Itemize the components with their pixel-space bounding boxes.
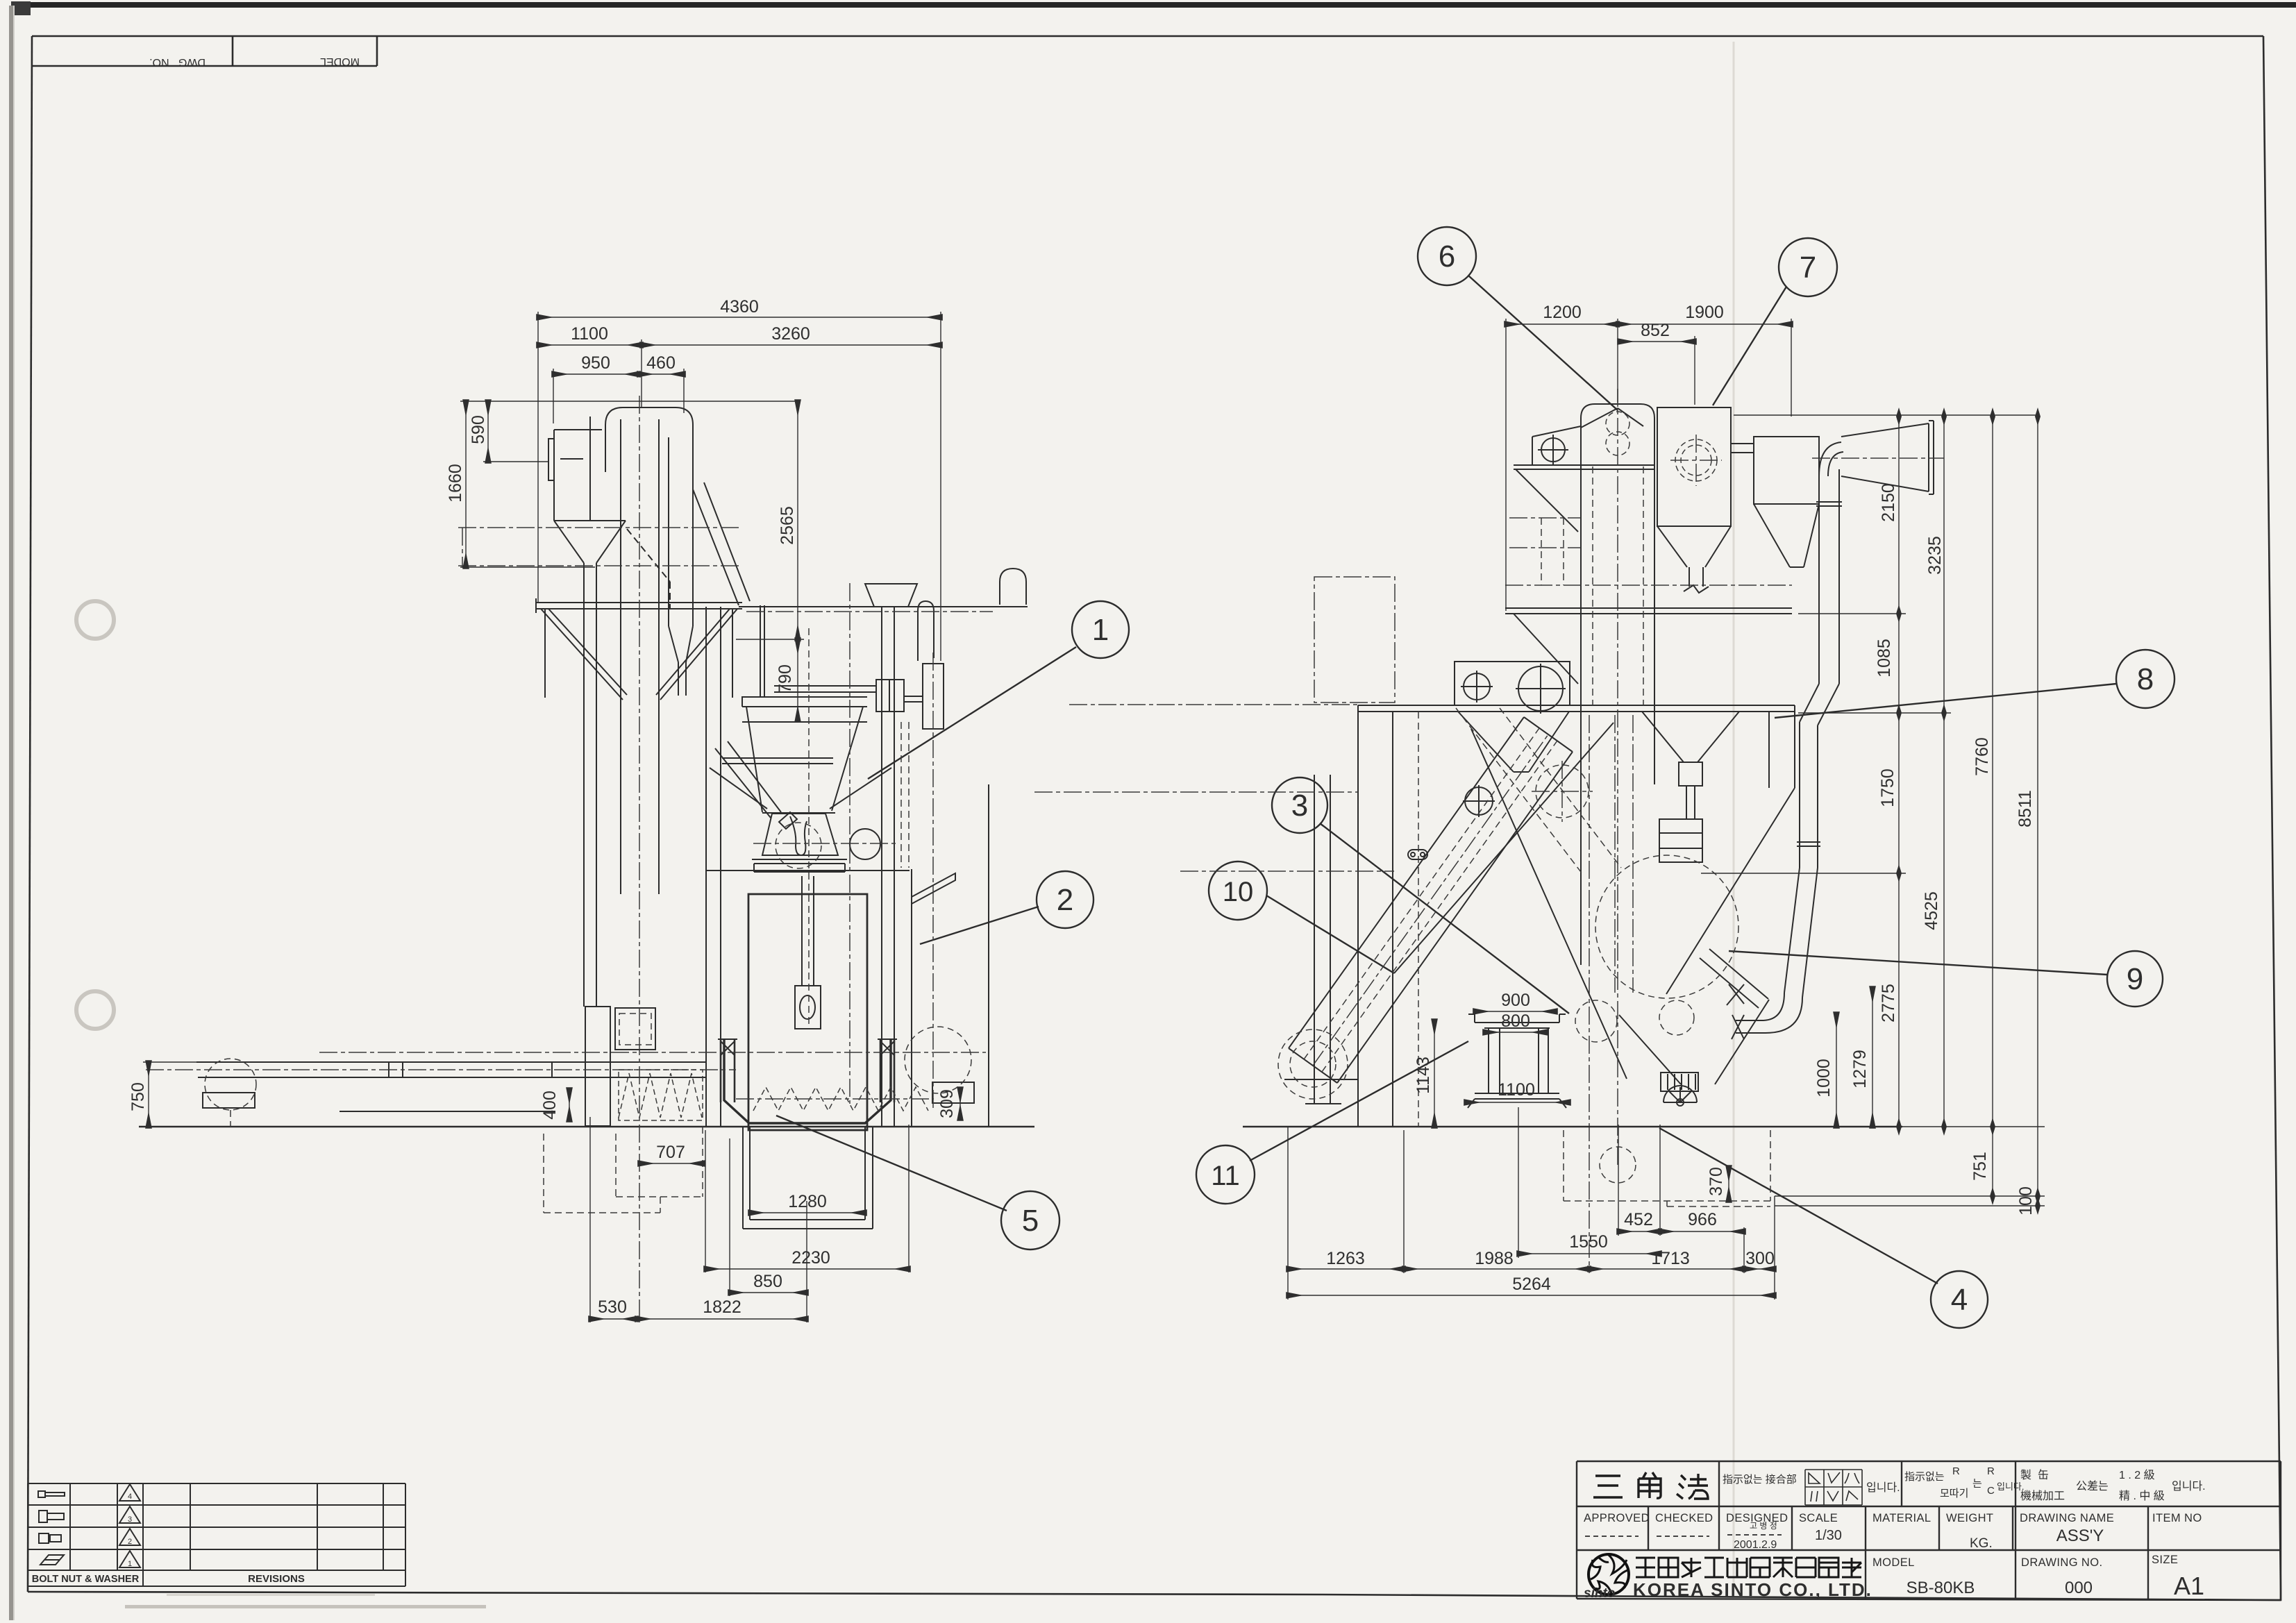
svg-text:4: 4	[128, 1492, 132, 1501]
svg-text:5264: 5264	[1512, 1275, 1551, 1294]
svg-text:590: 590	[469, 415, 488, 444]
svg-text:KOREA SINTO CO., LTD.: KOREA SINTO CO., LTD.	[1633, 1579, 1872, 1600]
svg-text:1085: 1085	[1875, 639, 1894, 678]
svg-text:ASS'Y: ASS'Y	[2056, 1527, 2104, 1545]
svg-text:1200: 1200	[1543, 303, 1582, 322]
svg-text:6: 6	[1439, 239, 1455, 274]
svg-text:850: 850	[753, 1272, 782, 1291]
svg-text:8511: 8511	[2016, 790, 2035, 827]
svg-text:입니다.: 입니다.	[1866, 1481, 1900, 1494]
svg-text:1: 1	[1092, 613, 1109, 647]
svg-text:2565: 2565	[778, 506, 797, 545]
svg-text:DRAWING NAME: DRAWING NAME	[2020, 1512, 2114, 1524]
svg-text:REVISIONS: REVISIONS	[248, 1573, 305, 1585]
svg-text:800: 800	[1501, 1011, 1530, 1031]
svg-text:製 缶: 製 缶	[2020, 1469, 2049, 1481]
svg-text:3: 3	[1291, 789, 1308, 823]
svg-text:4360: 4360	[720, 297, 759, 317]
svg-text:3260: 3260	[771, 324, 810, 344]
svg-text:MATERIAL: MATERIAL	[1872, 1512, 1932, 1524]
svg-text:1: 1	[128, 1560, 132, 1568]
svg-text:MODEL: MODEL	[1872, 1556, 1915, 1569]
svg-text:1660: 1660	[446, 464, 465, 503]
svg-text:1279: 1279	[1850, 1050, 1870, 1088]
svg-text:11: 11	[1211, 1161, 1240, 1191]
svg-text:1 . 2 級: 1 . 2 級	[2119, 1469, 2155, 1481]
svg-text:SIZE: SIZE	[2152, 1554, 2178, 1566]
svg-text:750: 750	[128, 1082, 148, 1111]
svg-text:입니다.: 입니다.	[2172, 1480, 2206, 1492]
svg-text:指示없는 接合部: 指示없는 接合部	[1723, 1474, 1797, 1486]
svg-text:2: 2	[1057, 883, 1073, 917]
svg-text:MODEL: MODEL	[320, 56, 360, 67]
svg-text:400: 400	[540, 1091, 560, 1120]
svg-text:309: 309	[937, 1089, 957, 1118]
svg-text:公差는: 公差는	[2076, 1480, 2109, 1492]
svg-text:모따기: 모따기	[1940, 1488, 1968, 1499]
svg-text:7760: 7760	[1972, 737, 1992, 776]
svg-text:DRAWING NO.: DRAWING NO.	[2021, 1556, 2102, 1569]
svg-text:707: 707	[656, 1143, 685, 1162]
svg-text:790: 790	[776, 664, 795, 693]
svg-text:1280: 1280	[788, 1192, 827, 1211]
svg-text:3235: 3235	[1925, 536, 1945, 575]
svg-text:5: 5	[1022, 1204, 1039, 1238]
svg-text:900: 900	[1501, 991, 1530, 1010]
svg-text:SB-80KB: SB-80KB	[1907, 1579, 1975, 1597]
svg-text:4: 4	[1951, 1283, 1968, 1317]
svg-text:CHECKED: CHECKED	[1655, 1512, 1713, 1524]
svg-text:2150: 2150	[1879, 483, 1898, 522]
svg-text:2230: 2230	[791, 1248, 830, 1268]
svg-text:SCALE: SCALE	[1799, 1512, 1838, 1524]
svg-text:1988: 1988	[1475, 1249, 1514, 1268]
svg-text:KG.: KG.	[1970, 1536, 1993, 1551]
svg-text:7: 7	[1800, 251, 1816, 285]
svg-text:ITEM NO: ITEM NO	[2152, 1512, 2202, 1524]
svg-text:8: 8	[2137, 662, 2154, 696]
svg-text:1750: 1750	[1878, 768, 1897, 807]
svg-text:1713: 1713	[1651, 1249, 1690, 1268]
svg-text:460: 460	[646, 353, 676, 373]
svg-text:2775: 2775	[1879, 984, 1898, 1023]
svg-text:DWG NO.: DWG NO.	[149, 56, 206, 68]
svg-text:000: 000	[2065, 1579, 2093, 1597]
svg-text:370: 370	[1707, 1167, 1726, 1196]
svg-text:852: 852	[1641, 321, 1670, 340]
svg-text:고 병 정: 고 병 정	[1750, 1521, 1777, 1531]
svg-text:300: 300	[1745, 1249, 1775, 1268]
svg-text:751: 751	[1970, 1152, 1990, 1181]
svg-text:A1: A1	[2174, 1572, 2204, 1600]
svg-text:는: 는	[1972, 1478, 1982, 1490]
svg-text:452: 452	[1624, 1210, 1653, 1229]
svg-text:指示없는: 指示없는	[1904, 1471, 1945, 1483]
svg-text:966: 966	[1688, 1210, 1717, 1229]
svg-text:1263: 1263	[1326, 1249, 1365, 1268]
svg-text:1550: 1550	[1569, 1232, 1608, 1252]
svg-text:100: 100	[2016, 1186, 2036, 1216]
svg-text:1000: 1000	[1814, 1059, 1834, 1098]
svg-text:C: C	[1987, 1485, 1995, 1497]
svg-text:機械加工: 機械加工	[2020, 1490, 2065, 1502]
svg-text:9: 9	[2127, 962, 2143, 996]
svg-text:1100: 1100	[571, 324, 608, 344]
svg-text:1/30: 1/30	[1815, 1528, 1842, 1543]
svg-text:2: 2	[128, 1538, 132, 1546]
svg-text:530: 530	[598, 1297, 627, 1317]
svg-text:sinto: sinto	[1584, 1586, 1615, 1601]
svg-text:950: 950	[581, 353, 610, 373]
svg-text:APPROVED: APPROVED	[1584, 1512, 1650, 1524]
svg-text:4525: 4525	[1922, 891, 1941, 930]
svg-text:R: R	[1952, 1465, 1960, 1477]
svg-text:1822: 1822	[703, 1297, 741, 1317]
svg-text:2001.2.9: 2001.2.9	[1734, 1539, 1777, 1551]
svg-text:1143: 1143	[1414, 1057, 1433, 1094]
svg-text:BOLT NUT & WASHER: BOLT NUT & WASHER	[32, 1574, 140, 1585]
svg-text:1900: 1900	[1685, 303, 1724, 322]
svg-text:1100: 1100	[1498, 1080, 1535, 1100]
svg-text:10: 10	[1223, 877, 1254, 907]
svg-text:精 . 中 級: 精 . 中 級	[2119, 1490, 2165, 1502]
svg-text:WEIGHT: WEIGHT	[1946, 1512, 1993, 1524]
svg-text:3: 3	[128, 1515, 132, 1524]
svg-text:R: R	[1987, 1465, 1995, 1477]
